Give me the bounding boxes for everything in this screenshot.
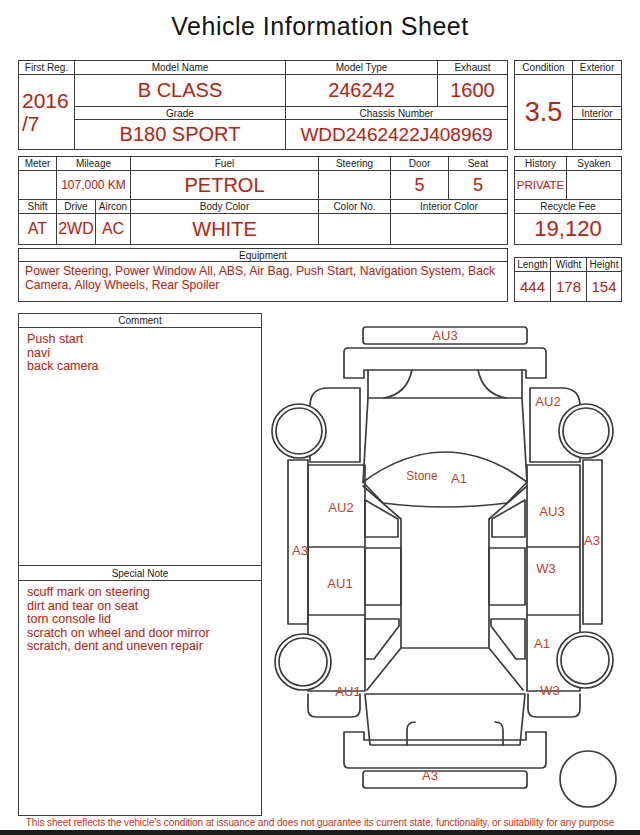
length-value: 444: [514, 271, 551, 302]
left-sill: [288, 460, 308, 624]
height-label: Height: [586, 257, 622, 272]
right-door-dividers: [527, 547, 580, 615]
first-reg-label: First Reg.: [18, 60, 75, 75]
equipment-value: Power Steering, Power Window All, ABS, A…: [18, 261, 508, 302]
damage-label-windshield-stone: Stone: [406, 469, 438, 483]
special-note-line: scuff mark on steering: [27, 586, 150, 600]
damage-label-left-mid-door: AU1: [327, 576, 352, 591]
condition-value: 3.5: [514, 74, 573, 150]
door-value: 5: [390, 170, 449, 200]
seat-value: 5: [448, 170, 508, 200]
exhaust-label: Exhaust: [437, 60, 508, 75]
rear-window: [365, 694, 525, 745]
first-reg-year: 2016: [22, 89, 69, 112]
aircon-label: Aircon: [95, 199, 131, 214]
damage-label-left-front-door: AU2: [328, 500, 353, 515]
special-note-line: scratch on wheel and door mirror: [27, 627, 210, 641]
comment-line: Push start: [27, 333, 83, 347]
syaken-label: Syaken: [566, 156, 622, 171]
recycle-fee-value: 19,120: [514, 213, 622, 245]
interior-value: [572, 119, 622, 150]
syaken-value: [566, 170, 622, 200]
recycle-fee-label: Recycle Fee: [514, 199, 622, 214]
interior-label: Interior: [572, 106, 622, 120]
special-note-text: scuff mark on steering dirt and tear on …: [18, 580, 262, 816]
damage-label-right-rear-door: A1: [534, 636, 550, 651]
disclaimer-text: This sheet reflects the vehicle's condit…: [0, 817, 640, 828]
rear-window-marks: [407, 722, 503, 745]
condition-label: Condition: [514, 60, 573, 75]
door-label: Door: [390, 156, 449, 171]
history-label: History: [514, 156, 567, 171]
shift-label: Shift: [18, 199, 57, 214]
vehicle-information-sheet: Vehicle Information Sheet First Reg. 201…: [0, 0, 640, 835]
comment-label: Comment: [18, 313, 262, 328]
fuel-label: Fuel: [130, 156, 319, 171]
special-note-label: Special Note: [18, 565, 262, 581]
length-label: Length: [514, 257, 551, 272]
model-type-label: Model Type: [285, 60, 438, 75]
damage-label-right-fender: AU2: [535, 394, 560, 409]
comment-line: back camera: [27, 360, 99, 374]
exterior-label: Exterior: [572, 60, 622, 75]
steering-label: Steering: [318, 156, 391, 171]
body-color-value: WHITE: [130, 213, 319, 245]
shift-value: AT: [18, 213, 57, 245]
a-pillars: [363, 398, 527, 482]
meter-label: Meter: [18, 156, 57, 171]
spare-wheel: [560, 751, 616, 807]
special-note-line: torn console lid: [27, 613, 111, 627]
seat-label: Seat: [448, 156, 508, 171]
page-bottom-bar: [0, 830, 640, 835]
model-name-value: B CLASS: [74, 74, 286, 107]
drive-value: 2WD: [56, 213, 96, 245]
damage-label-right-sill: A3: [584, 533, 600, 548]
interior-color-value: [390, 213, 508, 245]
comment-line: navi: [27, 347, 50, 361]
interior-color-label: Interior Color: [390, 199, 508, 214]
car-damage-diagram: AU3 AU2 Stone A1 AU2 AU3 A3 A3 W3 AU1 A1…: [270, 310, 640, 810]
damage-label-right-mid-door: W3: [536, 561, 556, 576]
comment-text: Push start navi back camera: [18, 327, 262, 566]
steering-value: [318, 170, 391, 200]
first-reg-value: 2016 /7: [18, 74, 75, 150]
color-no-value: [318, 213, 391, 245]
damage-label-left-rear: AU1: [335, 684, 360, 699]
mileage-value: 107,000 KM: [56, 170, 131, 200]
width-label: Widht: [550, 257, 587, 272]
special-note-line: dirt and tear on seat: [27, 600, 138, 614]
height-value: 154: [586, 271, 622, 302]
fuel-value: PETROL: [130, 170, 319, 200]
damage-label-front-strip: AU3: [432, 328, 457, 343]
hood-lines: [368, 370, 522, 398]
drive-label: Drive: [56, 199, 96, 214]
mileage-label: Mileage: [56, 156, 131, 171]
chassis-number-value: WDD2462422J408969: [285, 119, 508, 150]
exterior-value: [572, 74, 622, 107]
right-window-shapes: [489, 500, 525, 659]
rear-bumper: [344, 732, 546, 768]
color-no-label: Color No.: [318, 199, 391, 214]
damage-label-left-sill: A3: [292, 543, 308, 558]
exhaust-value: 1600: [437, 74, 508, 107]
chassis-number-label: Chassis Number: [285, 106, 508, 120]
cabin-outline: [363, 486, 527, 690]
width-value: 178: [550, 271, 587, 302]
equipment-label: Equipment: [18, 248, 508, 262]
meter-value: [18, 170, 57, 200]
rear-bottom-strip: [363, 771, 527, 788]
damage-label-windshield-a1: A1: [451, 471, 467, 486]
special-note-line: scratch, dent and uneven repair: [27, 640, 203, 654]
model-type-value: 246242: [285, 74, 438, 107]
damage-label-rear-strip: A3: [422, 768, 438, 783]
page-title: Vehicle Information Sheet: [0, 12, 640, 41]
left-window-shapes: [365, 500, 401, 659]
damage-label-right-rear: W3: [540, 683, 560, 698]
windshield: [363, 452, 527, 507]
first-reg-month: /7: [22, 112, 40, 135]
grade-label: Grade: [74, 106, 286, 120]
front-bumper: [344, 348, 546, 378]
damage-label-right-front-door: AU3: [539, 504, 564, 519]
grade-value: B180 SPORT: [74, 119, 286, 150]
body-color-label: Body Color: [130, 199, 319, 214]
aircon-value: AC: [95, 213, 131, 245]
history-value: PRIVATE: [514, 170, 567, 200]
model-name-label: Model Name: [74, 60, 286, 75]
headlight-arcs: [384, 370, 506, 398]
